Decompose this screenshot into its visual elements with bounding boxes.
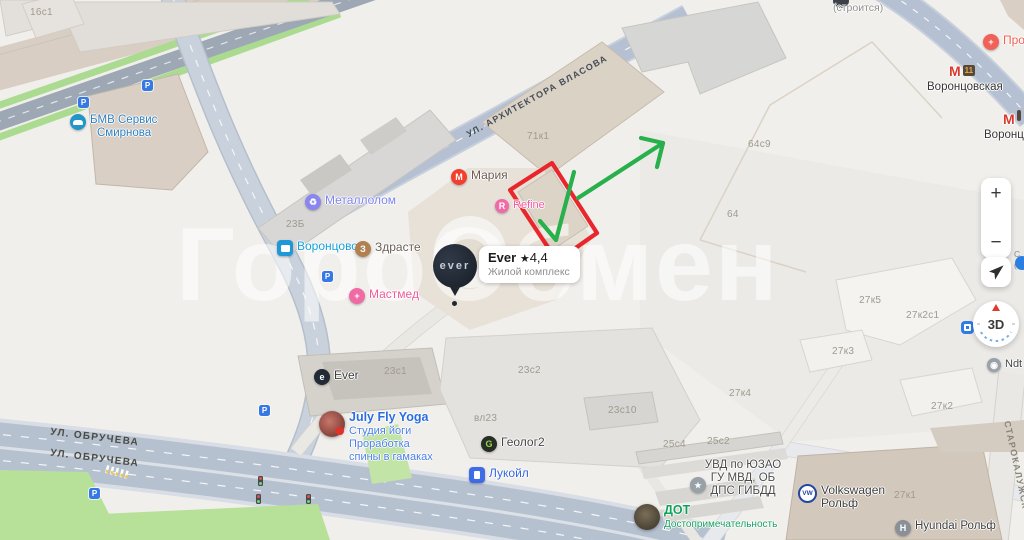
poi-mastmed[interactable]: + Мастмед bbox=[349, 288, 419, 304]
poi-progress-medical[interactable]: + Прогре bbox=[983, 34, 1024, 50]
poi-metallolom[interactable]: ♻ Металлолом bbox=[305, 194, 396, 210]
navigation-arrow-icon bbox=[988, 264, 1005, 281]
volkswagen-logo-icon: VW bbox=[798, 484, 817, 503]
store-icon: З bbox=[355, 241, 371, 257]
ever-pin-dot bbox=[452, 301, 457, 306]
ever-map-pin[interactable]: ever bbox=[433, 244, 477, 288]
recycling-icon: ♻ bbox=[305, 194, 321, 210]
ever-pin-tail bbox=[450, 287, 460, 296]
star-icon: ★ bbox=[520, 253, 530, 265]
poi-hyundai[interactable]: H Hyundai Рольф bbox=[895, 520, 996, 536]
poi-dot-landmark[interactable]: ДОТ Достопримечательность bbox=[634, 504, 777, 531]
medical-cross-icon: + bbox=[983, 34, 999, 50]
hyundai-icon: H bbox=[895, 520, 911, 536]
poi-july-fly-yoga[interactable]: July Fly Yoga Студия йоги Проработка спи… bbox=[319, 411, 433, 464]
north-indicator bbox=[992, 304, 1000, 311]
compass-3d-label: 3D bbox=[988, 317, 1005, 332]
photo-icon bbox=[634, 504, 660, 530]
medical-icon: + bbox=[349, 288, 365, 304]
poi-label: Прогре bbox=[1003, 34, 1024, 47]
poi-volkswagen[interactable]: VW VolkswagenРольф bbox=[798, 484, 885, 510]
map-viewport[interactable]: 16с123Б71к164с96423с123с2вл2323с1027к425… bbox=[0, 0, 1024, 540]
zoom-control[interactable]: + − bbox=[981, 178, 1011, 258]
metro-line-badge: 11 bbox=[963, 65, 975, 76]
ever-small-icon: e bbox=[314, 369, 330, 385]
ever-logo: ever bbox=[440, 260, 471, 272]
metro-label: Воронцовская bbox=[927, 81, 1003, 93]
clipped-poi-icon bbox=[1015, 256, 1024, 270]
metro-icon: М bbox=[949, 63, 961, 79]
poi-bmw-service[interactable]: БМВ СервисСмирнова bbox=[70, 114, 157, 140]
poi-vorontsovo-stop[interactable]: Воронцово bbox=[277, 240, 358, 256]
poi-label: Здрасте bbox=[375, 241, 421, 254]
car-service-icon bbox=[70, 114, 86, 130]
annotation-arrow bbox=[540, 138, 663, 240]
metro-vorontsovskaya-2[interactable]: М Воронцо bbox=[1003, 110, 1024, 141]
photo-icon bbox=[319, 411, 345, 437]
poi-label: Геолог2 bbox=[501, 436, 545, 449]
bus-stop-icon bbox=[277, 240, 293, 256]
poi-label: July Fly Yoga Студия йоги Проработка спи… bbox=[349, 411, 433, 464]
poi-label: Hyundai Рольф bbox=[915, 520, 996, 533]
poi-ndt[interactable]: ◉ Ndt bbox=[987, 358, 1022, 372]
business-center-icon: G bbox=[481, 436, 497, 452]
metro-vorontsovskaya[interactable]: М11 Воронцовская bbox=[949, 63, 1003, 93]
poi-label: Refine bbox=[513, 199, 545, 212]
poi-label: Мастмед bbox=[369, 288, 419, 301]
construction-label: (строится) bbox=[833, 2, 883, 15]
poi-refine[interactable]: R Refine bbox=[495, 199, 545, 213]
shop-icon: М bbox=[451, 169, 467, 185]
zoom-out-button[interactable]: − bbox=[990, 233, 1001, 252]
ever-title-row: Ever ★4,4 bbox=[488, 250, 570, 265]
compass-3d-button[interactable]: 3D bbox=[973, 301, 1019, 347]
poi-label: Лукойл bbox=[489, 467, 529, 480]
mini-pin-icon bbox=[334, 425, 345, 436]
metro-icon: М bbox=[1003, 111, 1015, 127]
poi-label: БМВ СервисСмирнова bbox=[90, 114, 157, 140]
poi-label: Ndt bbox=[1005, 358, 1022, 371]
ever-info-card[interactable]: Ever ★4,4 Жилой комплекс bbox=[479, 246, 580, 283]
ever-subtitle: Жилой комплекс bbox=[488, 266, 570, 278]
generic-poi-icon: ◉ bbox=[987, 358, 1001, 372]
locate-button[interactable] bbox=[981, 257, 1011, 287]
poi-label: ДОТ Достопримечательность bbox=[664, 504, 777, 531]
poi-label: Мария bbox=[471, 169, 508, 182]
metro-line-badge bbox=[1017, 110, 1021, 121]
poi-lukoil[interactable]: Лукойл bbox=[469, 467, 529, 483]
poi-maria[interactable]: М Мария bbox=[451, 169, 508, 185]
poi-label: Металлолом bbox=[325, 194, 396, 207]
zoom-in-button[interactable]: + bbox=[990, 184, 1001, 203]
metro-label: Воронцо bbox=[984, 129, 1024, 141]
poi-label: Ever bbox=[334, 369, 359, 382]
fuel-station-icon bbox=[469, 467, 485, 483]
beauty-icon: R bbox=[495, 199, 509, 213]
poi-ever-small[interactable]: e Ever bbox=[314, 369, 359, 385]
poi-uvd-label: УВД по ЮЗАОГУ МВД, ОБДПС ГИБДД bbox=[700, 459, 786, 498]
poi-label: VolkswagenРольф bbox=[821, 484, 885, 510]
poi-label: Воронцово bbox=[297, 240, 358, 253]
poi-geolog[interactable]: G Геолог2 bbox=[481, 436, 545, 452]
poi-zdraste[interactable]: З Здрасте bbox=[355, 241, 421, 257]
